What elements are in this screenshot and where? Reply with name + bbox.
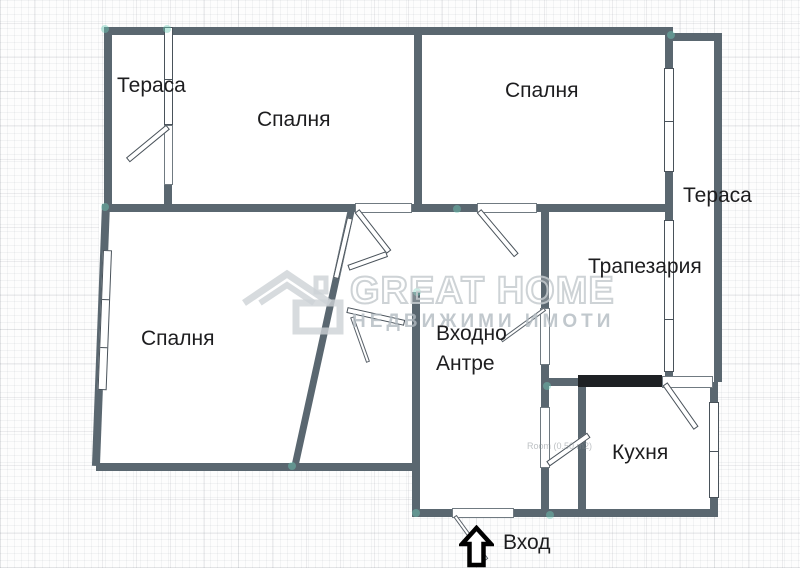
outer-wall-bottom-bedroom <box>96 463 416 471</box>
entrance-arrow-icon <box>459 525 494 568</box>
outer-wall-left-top <box>104 27 112 212</box>
outer-wall-top <box>104 27 673 35</box>
hallway-wall-left <box>104 204 355 212</box>
snap-dot <box>101 25 109 33</box>
watermark-brand: GREAT HOME <box>350 270 615 313</box>
door-opening-terrace-top-left <box>164 125 173 185</box>
snap-dot <box>412 509 420 517</box>
room-label-entry-hall-line1: Входно <box>436 322 507 346</box>
door-opening-entrance <box>452 508 514 518</box>
room-label-entry-hall-line2: Антре <box>436 352 495 376</box>
built-in-unit <box>578 375 662 387</box>
room-label-terrace-top-left: Тераса <box>117 74 186 98</box>
hallway-wall-right <box>537 204 673 212</box>
room-label-kitchen: Кухня <box>612 441 668 465</box>
room-label-dining: Трапезария <box>588 255 702 279</box>
window-bedroom-top-right <box>664 68 674 172</box>
window-kitchen <box>709 402 719 498</box>
room-label-bedroom-top-right: Спалня <box>505 79 578 103</box>
snap-dot <box>101 203 109 211</box>
snap-dot <box>163 25 171 33</box>
divider-top-bedrooms <box>414 33 422 208</box>
hallway-wall-mid <box>412 204 477 212</box>
snap-dot <box>453 205 461 213</box>
room-fill-top-block <box>104 27 673 212</box>
floor-plan: GREAT HOME НЕДВИЖИМИ ИМОТИ Room (0.50 m2… <box>0 0 800 568</box>
room-label-bedroom-top: Спалня <box>257 108 330 132</box>
area-note: Room (0.50 m2) <box>527 441 592 451</box>
room-fill-terrace-right <box>672 35 715 381</box>
door-opening-hallway-2 <box>477 203 537 213</box>
door-opening-hallway-1 <box>355 203 412 213</box>
room-label-terrace-right: Тераса <box>683 184 752 208</box>
terrace-tl-divider-stub <box>164 185 172 212</box>
room-label-bedroom-left: Спалня <box>141 327 214 351</box>
snap-dot <box>543 382 551 390</box>
entrance-label: Вход <box>503 531 551 555</box>
snap-dot <box>288 462 296 470</box>
house-icon <box>236 266 366 336</box>
snap-dot <box>546 511 554 519</box>
snap-dot <box>667 31 675 39</box>
window-dining <box>664 220 674 372</box>
